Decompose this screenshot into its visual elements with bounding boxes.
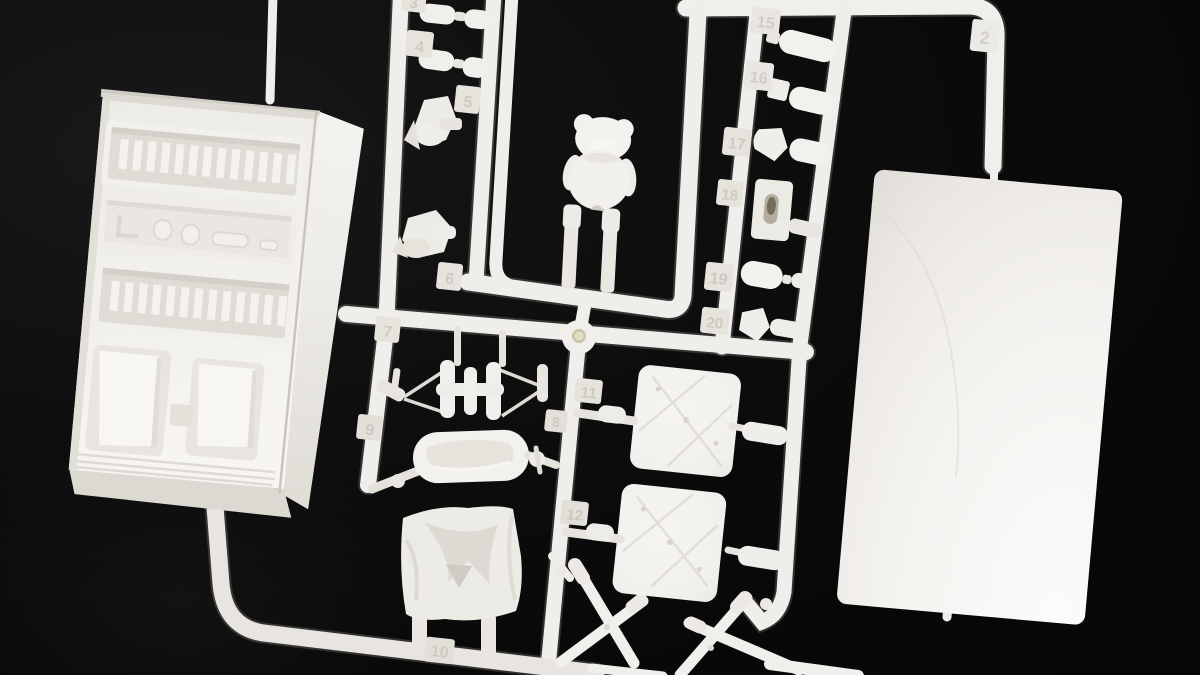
svg-text:11: 11 [580, 384, 598, 403]
svg-text:9: 9 [364, 422, 375, 440]
svg-text:20: 20 [706, 314, 724, 333]
svg-text:5: 5 [462, 94, 473, 112]
svg-text:4: 4 [414, 39, 425, 57]
svg-text:15: 15 [756, 14, 776, 33]
svg-text:2: 2 [979, 28, 991, 49]
svg-text:10: 10 [430, 643, 450, 662]
svg-text:19: 19 [709, 270, 729, 289]
svg-text:12: 12 [566, 506, 584, 525]
svg-text:7: 7 [382, 324, 393, 342]
svg-text:18: 18 [721, 186, 739, 205]
svg-text:17: 17 [727, 135, 747, 154]
svg-text:16: 16 [749, 69, 769, 88]
svg-text:6: 6 [444, 271, 455, 289]
